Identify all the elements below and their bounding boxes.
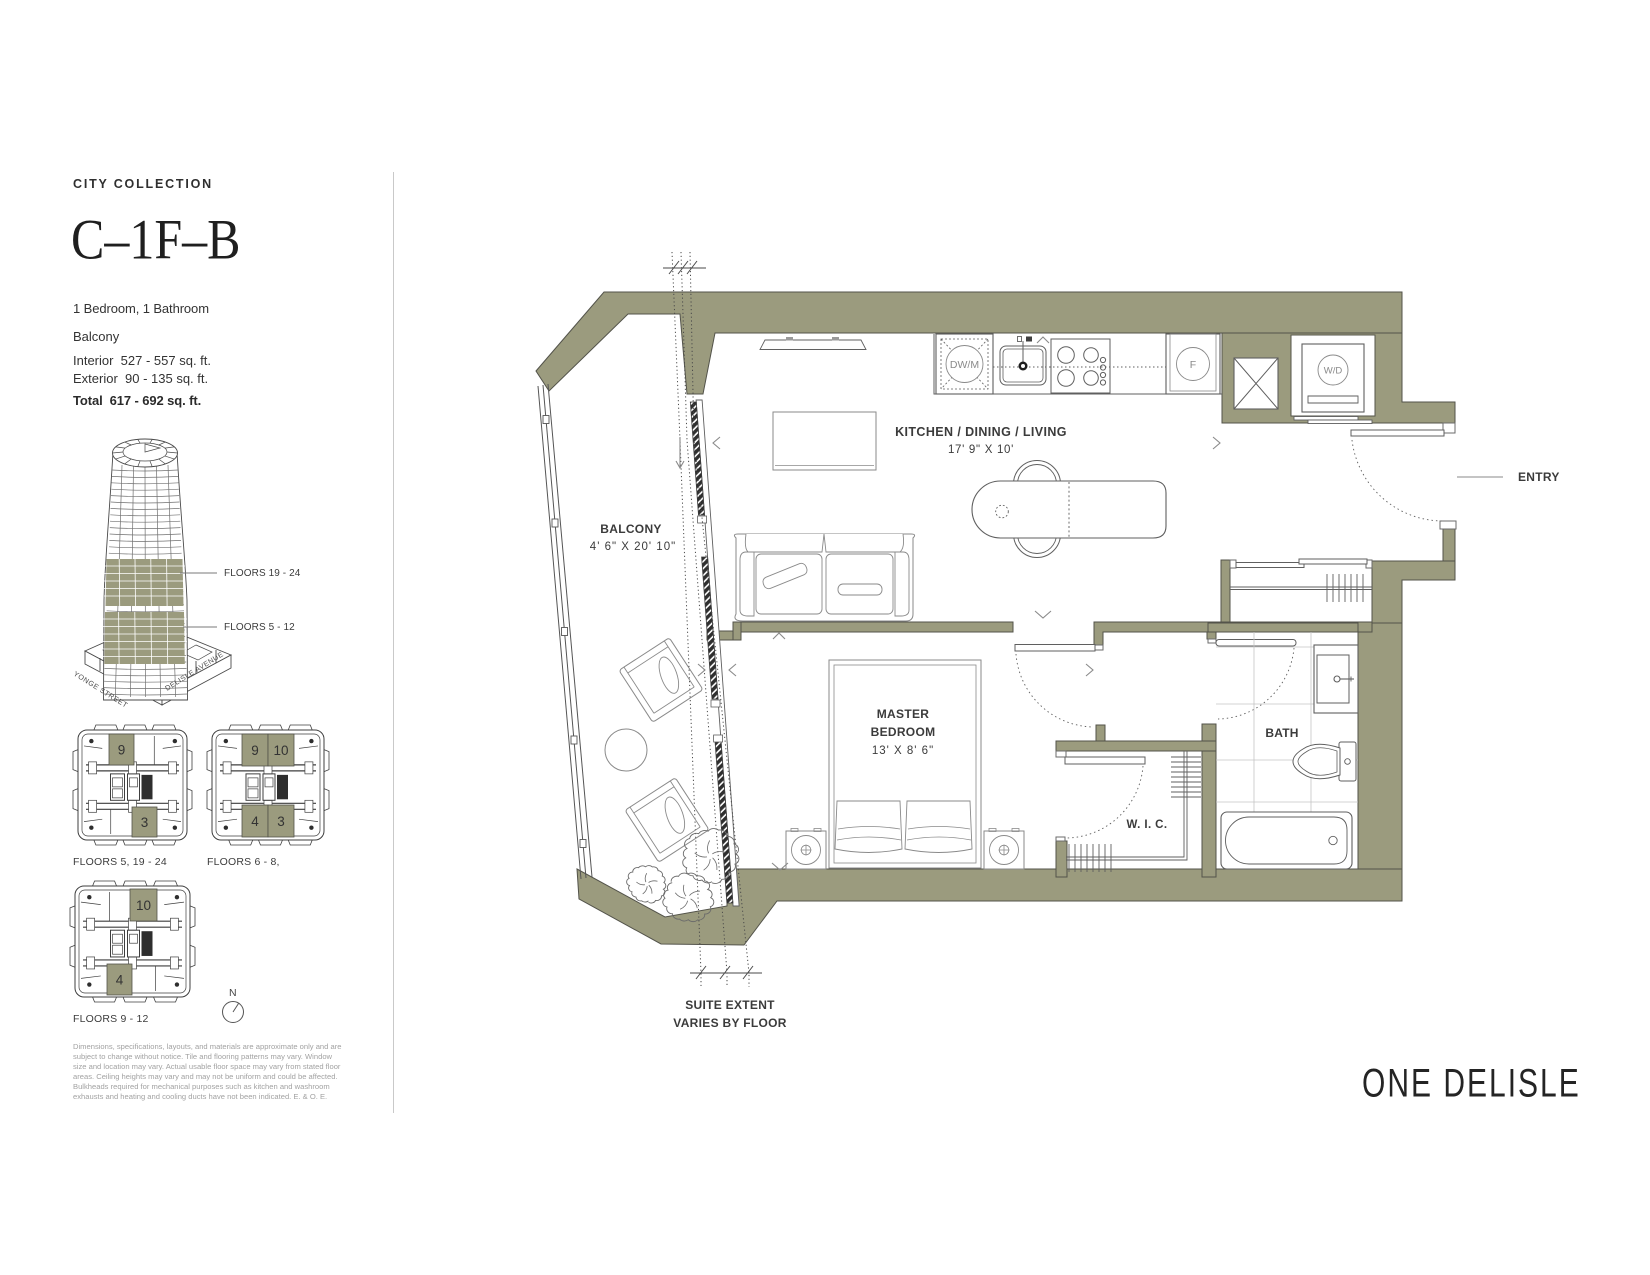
svg-text:13' X 8' 6": 13' X 8' 6" [872,745,934,757]
svg-text:10: 10 [136,898,151,913]
svg-text:VARIES BY FLOOR: VARIES BY FLOOR [673,1016,786,1030]
svg-text:BEDROOM: BEDROOM [871,725,936,739]
svg-text:4' 6" X 20' 10": 4' 6" X 20' 10" [590,541,676,553]
svg-text:ENTRY: ENTRY [1518,470,1560,484]
svg-text:10: 10 [273,743,288,758]
svg-text:9: 9 [251,743,259,758]
svg-text:W/D: W/D [1324,366,1343,377]
svg-text:DW/M: DW/M [950,359,979,371]
svg-text:N: N [229,987,237,999]
svg-text:17' 9" X 10': 17' 9" X 10' [948,444,1014,456]
svg-text:MASTER: MASTER [877,707,929,721]
svg-text:KITCHEN / DINING / LIVING: KITCHEN / DINING / LIVING [895,425,1067,439]
svg-text:F: F [1190,359,1196,371]
svg-text:SUITE EXTENT: SUITE EXTENT [685,998,775,1012]
svg-text:3: 3 [141,815,149,830]
svg-text:BATH: BATH [1265,726,1298,740]
svg-text:4: 4 [251,814,259,829]
svg-text:4: 4 [116,973,124,988]
svg-text:9: 9 [118,743,126,758]
svg-text:W. I. C.: W. I. C. [1127,819,1168,831]
svg-text:3: 3 [277,814,285,829]
svg-text:BALCONY: BALCONY [600,522,661,536]
